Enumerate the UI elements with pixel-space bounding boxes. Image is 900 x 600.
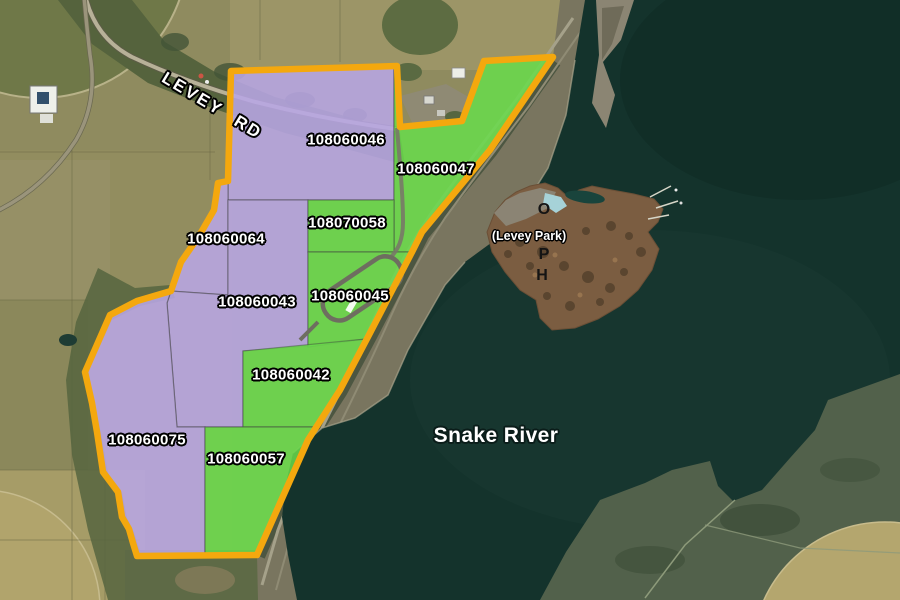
parcel-label-108060057[interactable]: 108060057 bbox=[207, 451, 285, 468]
snake-river-label: Snake River bbox=[434, 424, 559, 448]
parcel-label-108070058[interactable]: 108070058 bbox=[308, 215, 386, 232]
far-shore-vegetation bbox=[820, 458, 880, 482]
parcel-label-108060047[interactable]: 108060047 bbox=[397, 161, 475, 178]
parcel-label-108060043[interactable]: 108060043 bbox=[218, 294, 296, 311]
parcel-label-108060045[interactable]: 108060045 bbox=[311, 288, 389, 305]
satellite-parcel-map[interactable]: LEVEY RD 108060046 108060047 108070058 1… bbox=[0, 0, 900, 600]
farmstead-building bbox=[424, 96, 434, 104]
farm-building-roof bbox=[37, 92, 49, 104]
parcel-label-108060046[interactable]: 108060046 bbox=[307, 132, 385, 149]
scrub-patch bbox=[175, 566, 235, 594]
parcel-label-108060042[interactable]: 108060042 bbox=[252, 367, 330, 384]
parcel-label-108060075[interactable]: 108060075 bbox=[108, 432, 186, 449]
small-structure bbox=[199, 74, 204, 79]
farm-building bbox=[40, 114, 53, 123]
vertical-letter-h: H bbox=[536, 267, 548, 285]
field-patch bbox=[0, 160, 110, 300]
vertical-letter-p: P bbox=[539, 246, 550, 264]
farmstead-building bbox=[452, 68, 465, 78]
vertical-letter-o: O bbox=[538, 201, 550, 219]
parcel-label-108060064[interactable]: 108060064 bbox=[187, 231, 265, 248]
map-canvas[interactable] bbox=[0, 0, 900, 600]
boat-dot bbox=[675, 189, 678, 192]
pond bbox=[59, 334, 77, 346]
farmstead-building bbox=[437, 110, 445, 116]
boat-dot bbox=[680, 202, 683, 205]
levey-park-label: (Levey Park) bbox=[492, 229, 566, 243]
